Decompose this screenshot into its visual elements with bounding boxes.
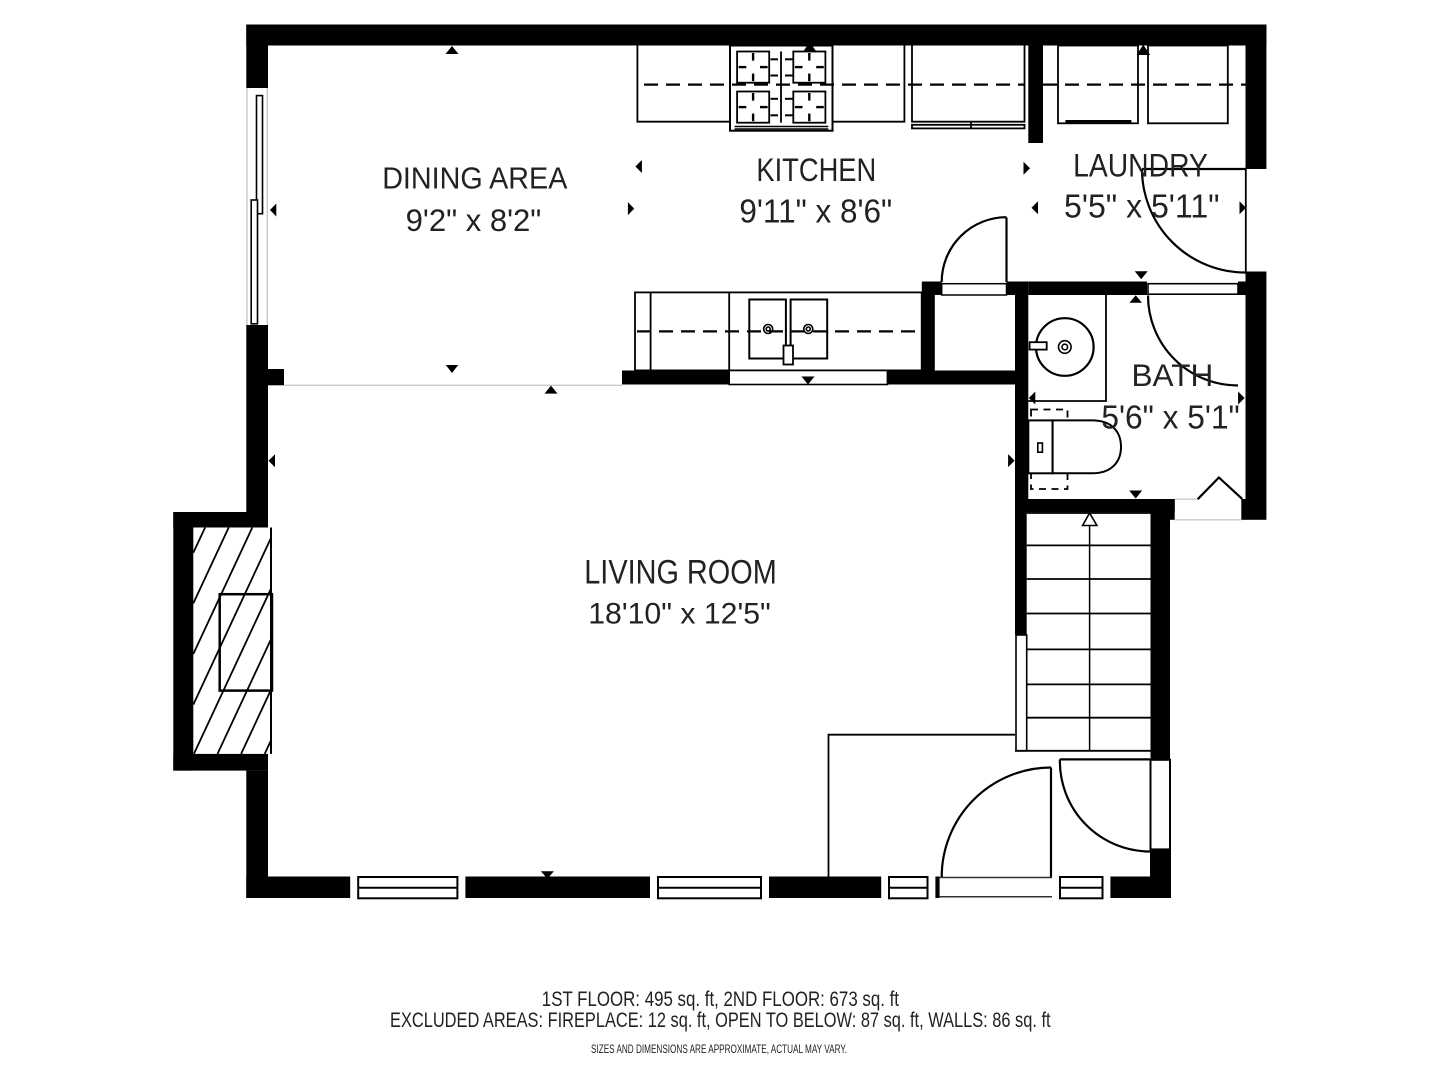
svg-text:9'11" x 8'6": 9'11" x 8'6" xyxy=(739,193,892,230)
svg-text:EXCLUDED AREAS: FIREPLACE: 12: EXCLUDED AREAS: FIREPLACE: 12 sq. ft, OP… xyxy=(390,1008,1051,1032)
svg-text:5'6" x 5'1": 5'6" x 5'1" xyxy=(1101,399,1239,436)
svg-text:KITCHEN: KITCHEN xyxy=(756,152,876,188)
svg-text:LIVING ROOM: LIVING ROOM xyxy=(584,554,777,592)
svg-text:DINING AREA: DINING AREA xyxy=(382,161,568,195)
svg-text:SIZES AND DIMENSIONS ARE APPRO: SIZES AND DIMENSIONS ARE APPROXIMATE, AC… xyxy=(591,1042,847,1056)
svg-text:18'10" x 12'5": 18'10" x 12'5" xyxy=(588,597,771,630)
svg-text:5'5" x 5'11": 5'5" x 5'11" xyxy=(1064,187,1220,224)
svg-text:9'2" x 8'2": 9'2" x 8'2" xyxy=(406,202,542,238)
svg-text:BATH: BATH xyxy=(1132,357,1214,393)
svg-text:LAUNDRY: LAUNDRY xyxy=(1073,147,1208,183)
